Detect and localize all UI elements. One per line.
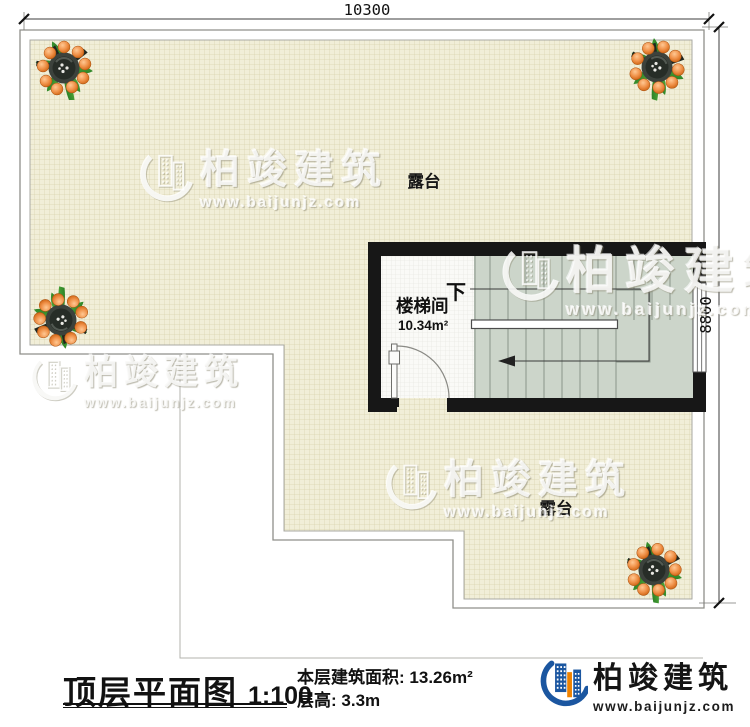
floor-area-label: 本层建筑面积:: [297, 668, 405, 687]
stairwell-label: 楼梯间: [396, 296, 449, 316]
door-hinge-plate: [389, 351, 400, 364]
title-underline-thin: [63, 707, 287, 708]
company-url: www.baijunjz.com: [593, 699, 735, 714]
floor-height-label: 层高:: [297, 691, 337, 710]
dimension-top-value: 10300: [344, 1, 391, 19]
company-logo: 柏竣建筑 www.baijunjz.com: [536, 658, 735, 714]
drawing-title: 顶层平面图: [63, 674, 238, 711]
stair-handrail: [472, 320, 618, 329]
down-label: 下: [446, 282, 466, 304]
dimension-right-value: 8800: [697, 296, 715, 333]
floor-plan-sheet: 楼梯间 10.34m² 下 露台 露台 10300 8800: [0, 0, 750, 727]
terrace-label-upper: 露台: [408, 171, 441, 191]
dimension-top: 10300: [19, 1, 714, 30]
dimension-right: 8800: [697, 22, 736, 608]
floor-area-line: 本层建筑面积: 13.26m²: [297, 666, 473, 689]
stairwell: 楼梯间 10.34m² 下: [368, 242, 706, 412]
floor-height-value: 3.3m: [341, 691, 380, 710]
company-logo-icon: [536, 658, 588, 714]
company-name: 柏竣建筑: [593, 664, 735, 694]
title-underline-thick: [63, 703, 287, 705]
floor-info: 本层建筑面积: 13.26m² 层高: 3.3m: [297, 666, 473, 712]
floor-area-value: 13.26m²: [409, 668, 472, 687]
stairwell-area: 10.34m²: [398, 318, 449, 333]
floor-height-line: 层高: 3.3m: [297, 689, 473, 712]
floor-plan-drawing: 楼梯间 10.34m² 下 露台 露台 10300 8800: [0, 0, 750, 727]
terrace-label-lower: 露台: [540, 498, 573, 518]
